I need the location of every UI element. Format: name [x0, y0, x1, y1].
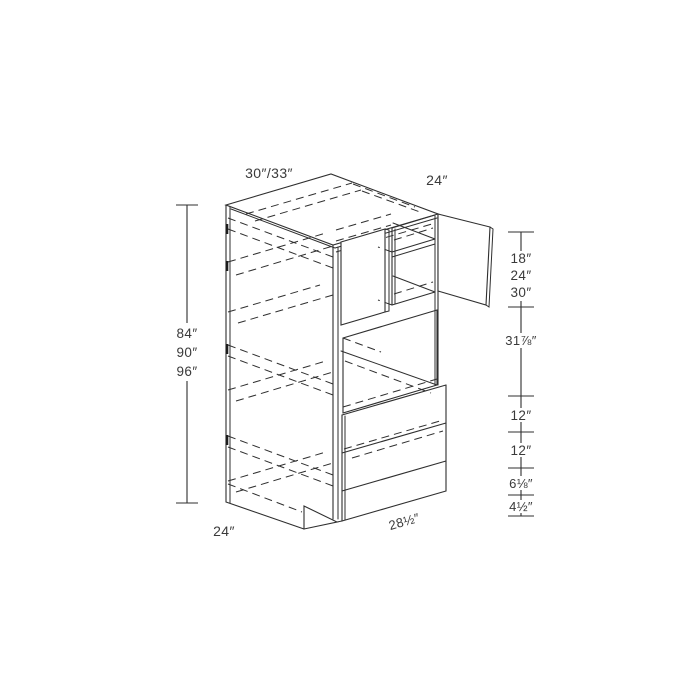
cabinet-dimension-diagram: 84″ 90″ 96″ 18″ 24″ 30″ 31⅞″ 12″ 12″ 6⅛″…: [0, 0, 700, 700]
drawer-height-label: 12″: [511, 443, 532, 458]
height-option-label: 96″: [177, 364, 198, 379]
height-option-label: 84″: [177, 326, 198, 341]
upper-opening-label: 18″: [511, 251, 532, 266]
drawer-separator: [342, 461, 446, 491]
drawer-top-edge: [342, 385, 446, 415]
height-option-label: 90″: [177, 345, 198, 360]
top-depth-label: 24″: [426, 172, 448, 188]
toe-kick-label: 4½″: [509, 499, 533, 514]
top-width-label: 30″/33″: [245, 165, 293, 181]
drawer-height-label: 12″: [511, 408, 532, 423]
drawer-separator: [342, 423, 446, 453]
oven-opening-label: 31⅞″: [505, 333, 537, 348]
bottom-depth-label: 24″: [213, 523, 235, 539]
toe-kick: [304, 506, 342, 529]
oven-cavity-opening: [341, 310, 437, 413]
bottom-width-label: 28½″: [387, 510, 421, 533]
open-door: [438, 214, 493, 307]
adjustable-shelf: [392, 223, 435, 257]
cabinet-drawing: [226, 174, 493, 529]
closed-door-panel: [341, 229, 385, 325]
drawer-stack: [342, 385, 446, 521]
drawer-height-label: 6⅛″: [509, 476, 533, 491]
cabinet-side-panel: [226, 205, 333, 529]
upper-opening-label: 30″: [511, 285, 532, 300]
dimension-left-height: 84″ 90″ 96″: [168, 205, 206, 503]
dimension-right-sections: 18″ 24″ 30″ 31⅞″ 12″ 12″ 6⅛″ 4½″: [501, 232, 541, 516]
cabinet-top-face: [226, 174, 438, 248]
upper-opening-label: 24″: [511, 268, 532, 283]
